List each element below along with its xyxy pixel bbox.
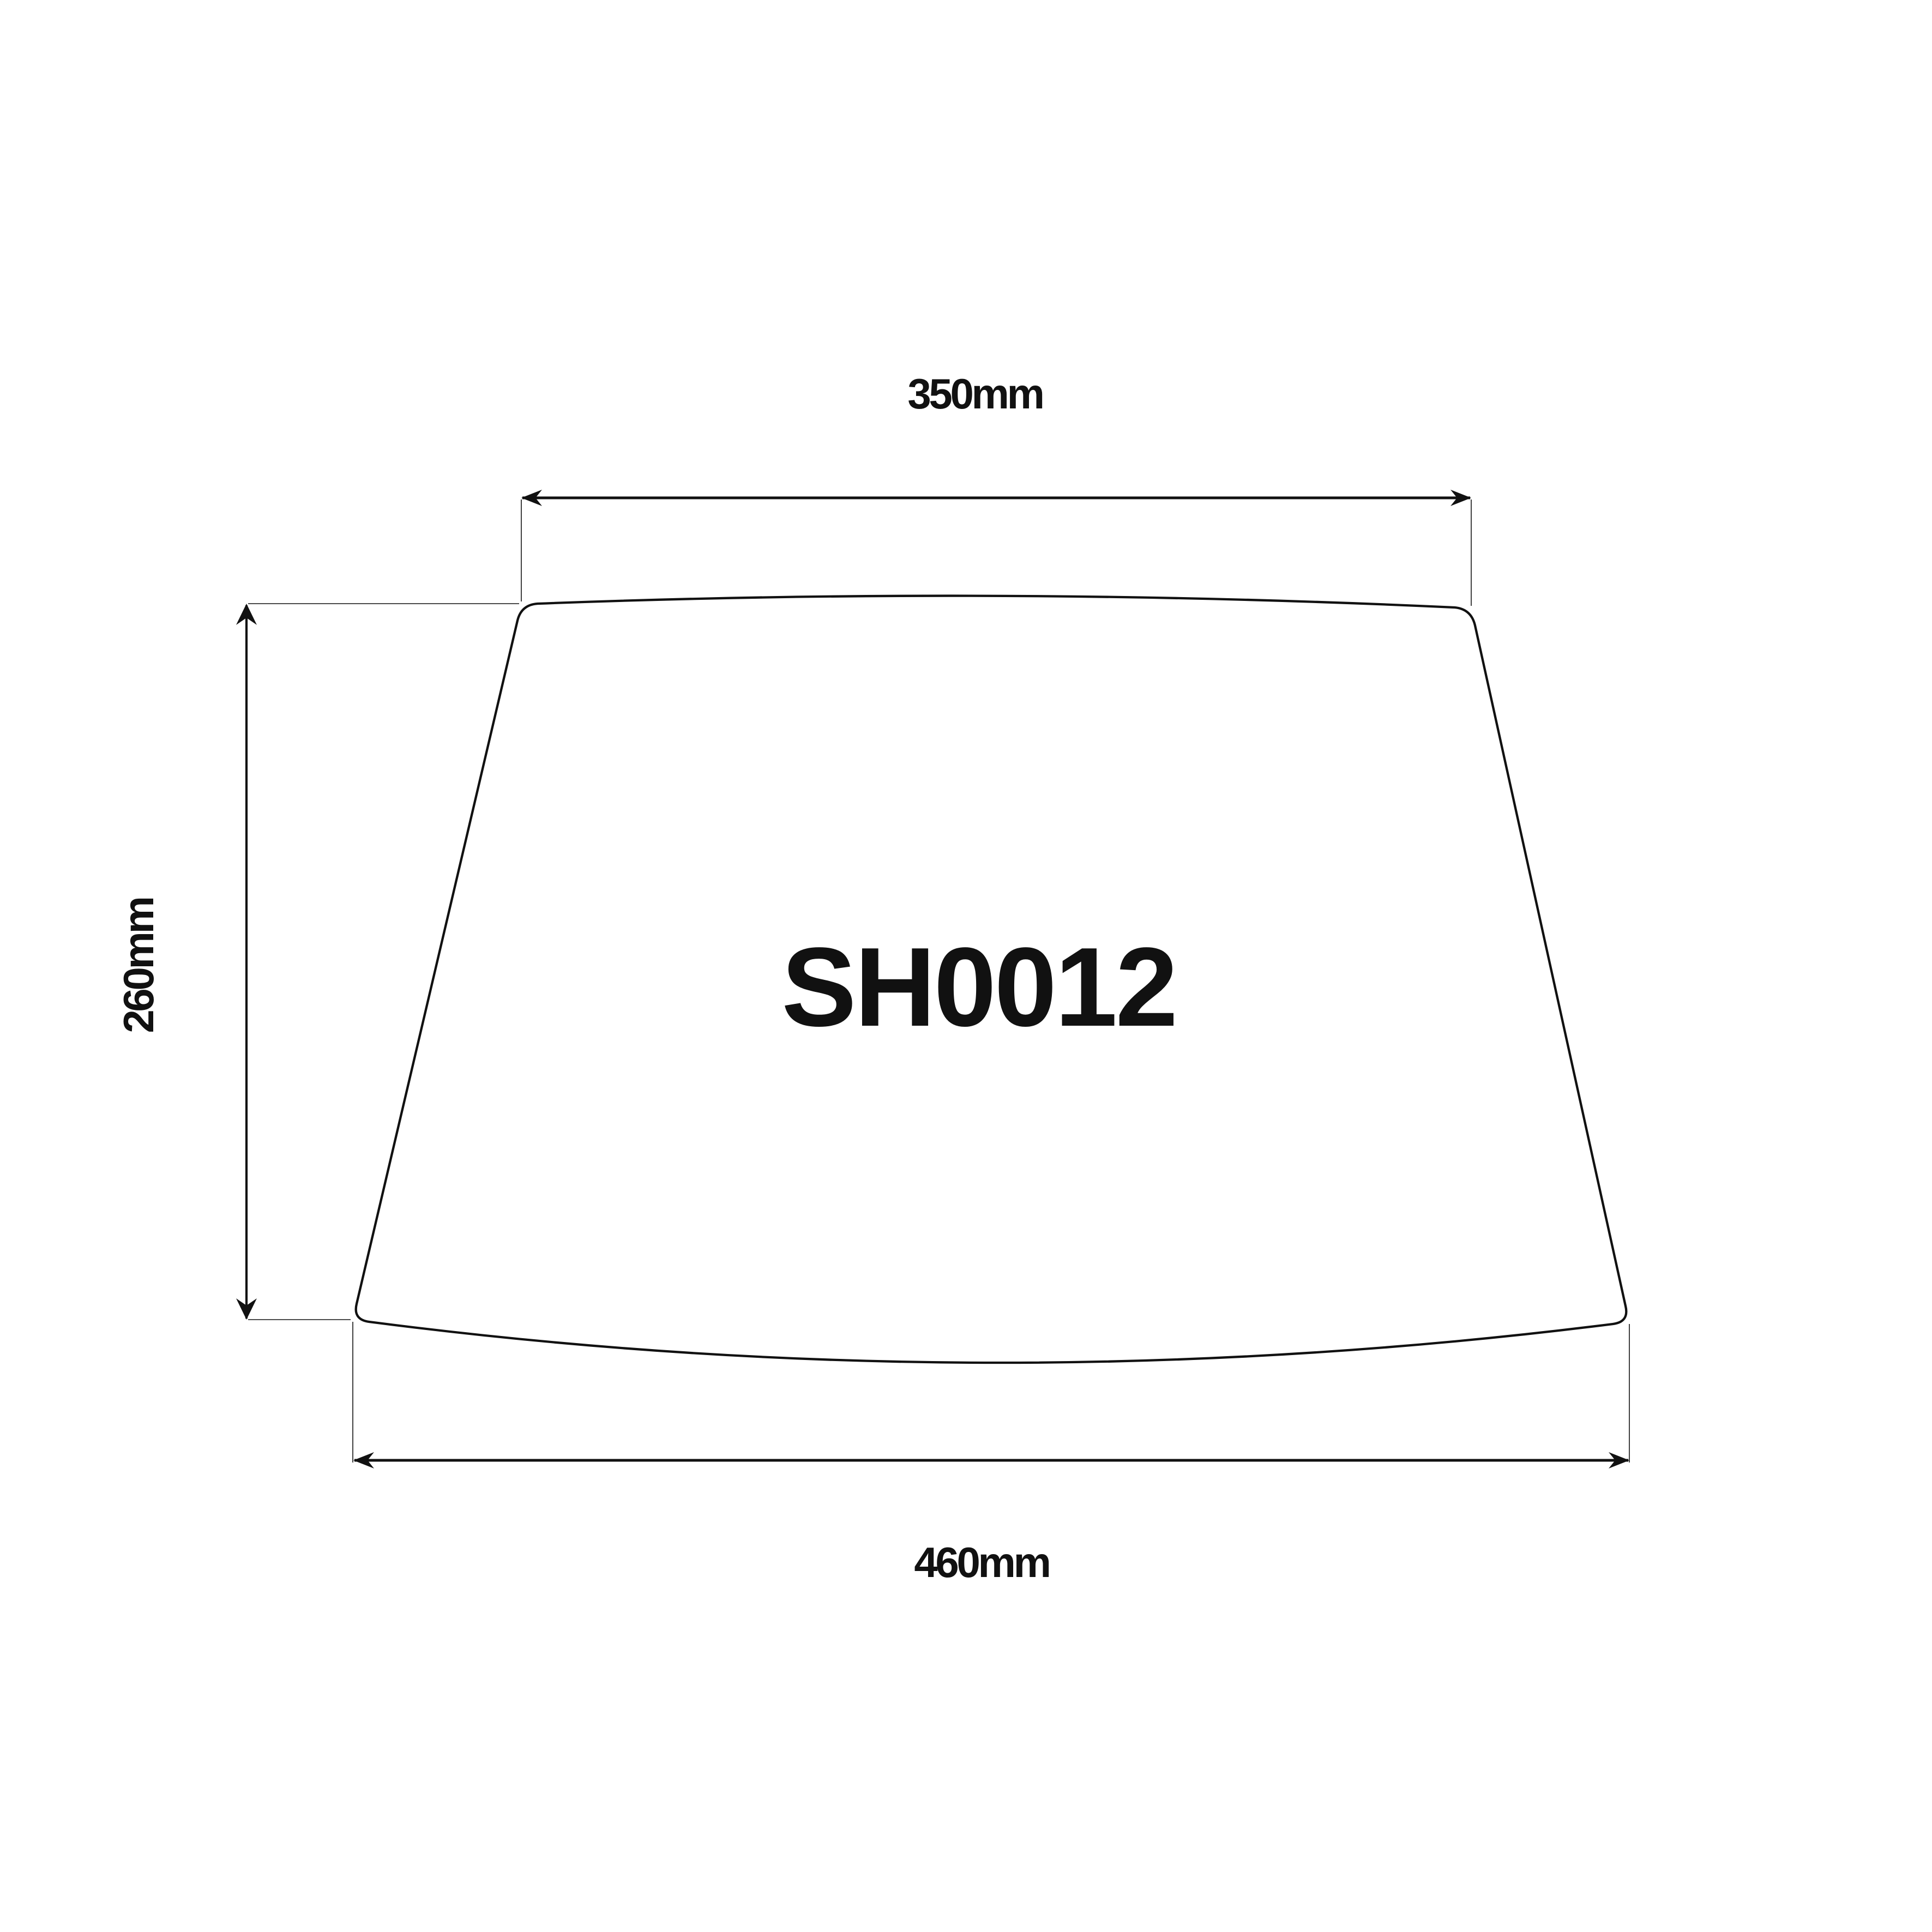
bottom-width-label: 460mm	[914, 1541, 1049, 1584]
height-label: 260mm	[117, 898, 160, 1033]
top-width-dimension	[521, 490, 1471, 506]
drawing-canvas: 350mm 260mm 460mm SH0012	[0, 0, 1932, 1932]
product-code-label: SH0012	[781, 931, 1176, 1043]
height-dimension	[236, 604, 257, 1320]
top-width-label: 350mm	[907, 372, 1042, 415]
bottom-width-dimension	[353, 1452, 1629, 1468]
